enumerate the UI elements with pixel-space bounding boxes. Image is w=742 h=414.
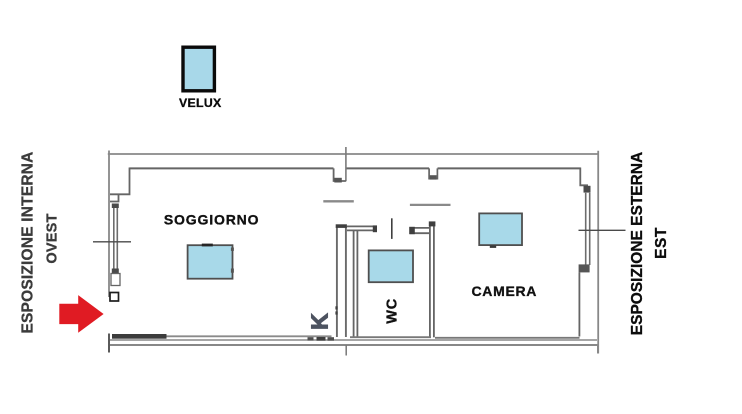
svg-text:ESPOSIZIONE INTERNA: ESPOSIZIONE INTERNA: [20, 151, 37, 333]
svg-text:K: K: [307, 313, 333, 330]
svg-text:CAMERA: CAMERA: [471, 283, 537, 299]
svg-text:EST: EST: [653, 227, 670, 259]
svg-text:WC: WC: [384, 298, 400, 324]
svg-text:ESPOSIZIONE ESTERNA: ESPOSIZIONE ESTERNA: [629, 152, 646, 335]
svg-text:OVEST: OVEST: [45, 213, 61, 263]
svg-text:SOGGIORNO: SOGGIORNO: [164, 212, 260, 228]
svg-text:VELUX: VELUX: [179, 96, 222, 110]
